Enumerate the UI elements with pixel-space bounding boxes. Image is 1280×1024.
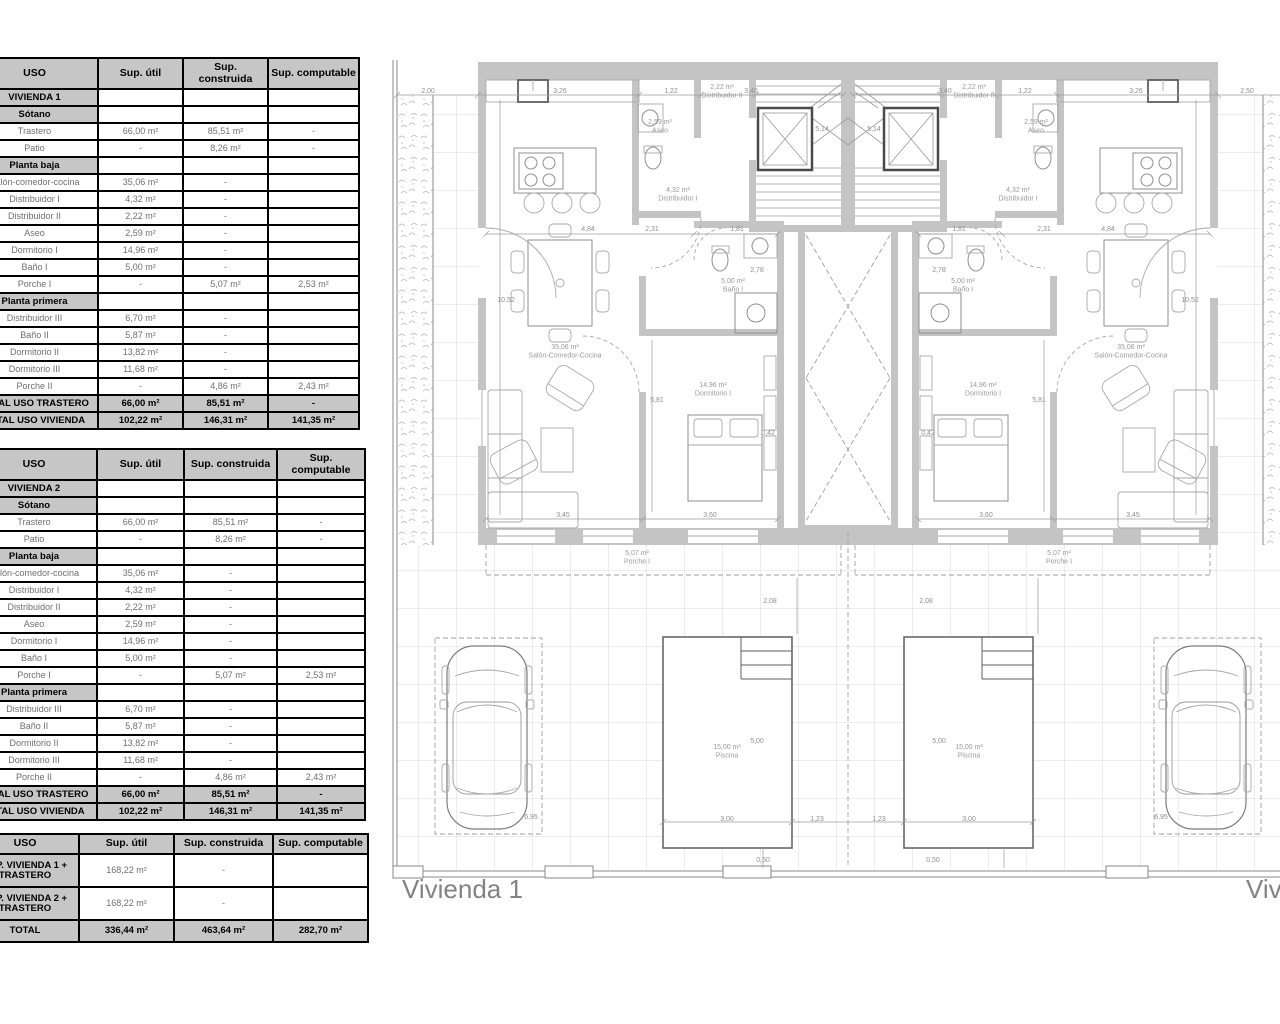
column-header-uso: USO [0, 834, 79, 854]
row-value [97, 684, 184, 701]
table-row: Distribuidor I4,32 m²- [0, 191, 359, 208]
table-row: VIVIENDA 2 [0, 480, 365, 497]
plan-label: 2,78 [932, 267, 946, 274]
plan-label: 2,50 [1240, 88, 1254, 95]
row-value: 102,22 m² [97, 803, 184, 820]
row-label: Patio [0, 531, 97, 548]
row-value: 141,35 m² [277, 803, 365, 820]
row-value [273, 854, 368, 887]
row-label: Distribuidor I [0, 191, 98, 208]
column-header-construida: Sup. construida [184, 449, 277, 480]
row-value: 66,00 m² [97, 786, 184, 803]
row-value: 5,00 m² [97, 650, 184, 667]
plan-label: 3,26 [553, 88, 567, 95]
plan-label: 1,81 [952, 226, 966, 233]
row-label: VIVIENDA 1 [0, 89, 98, 106]
plan-label: 10,52 [1181, 297, 1199, 304]
column-header-util: Sup. útil [97, 449, 184, 480]
surface-table-totals: USO Sup. útil Sup. construida Sup. compu… [0, 833, 369, 943]
row-label: VIVIENDA 2 [0, 480, 97, 497]
plan-label: 2,00 [421, 88, 435, 95]
table-row: Porche I-5,07 m²2,53 m² [0, 276, 359, 293]
row-value: 2,43 m² [268, 378, 359, 395]
row-value: 336,44 m² [79, 920, 174, 942]
row-value: 8,26 m² [183, 140, 268, 157]
row-value [184, 497, 277, 514]
plan-label: 3,00 [962, 816, 976, 823]
row-value [268, 310, 359, 327]
row-label: Distribuidor III [0, 310, 98, 327]
row-value: - [174, 887, 273, 920]
row-label: Baño I [0, 259, 98, 276]
table-row: Planta baja [0, 548, 365, 565]
row-label: Porche I [0, 276, 98, 293]
row-value [98, 106, 183, 123]
row-value [277, 650, 365, 667]
table-row: Trastero66,00 m²85,51 m²- [0, 123, 359, 140]
row-value [268, 293, 359, 310]
row-value: 5,07 m² [184, 667, 277, 684]
table-row: Dormitorio III11,68 m²- [0, 752, 365, 769]
row-value: 66,00 m² [98, 395, 183, 412]
row-label: Sótano [0, 106, 98, 123]
plan-label: 14,96 m²Dormitorio I [695, 382, 731, 398]
plan-label: 3,40 [744, 88, 758, 95]
plan-label: 1,23 [810, 816, 824, 823]
row-value [184, 548, 277, 565]
row-value: 13,82 m² [98, 344, 183, 361]
row-label: Planta baja [0, 548, 97, 565]
row-value: 35,06 m² [98, 174, 183, 191]
table-row: Trastero66,00 m²85,51 m²- [0, 514, 365, 531]
row-value [97, 548, 184, 565]
row-value: - [277, 514, 365, 531]
row-value [277, 480, 365, 497]
row-label: TOTAL USO TRASTERO [0, 395, 98, 412]
table-row: VIVIENDA 1 [0, 89, 359, 106]
row-value: - [183, 259, 268, 276]
column-header-computable: Sup. computable [268, 58, 359, 89]
row-value: - [184, 701, 277, 718]
row-value: 141,35 m² [268, 412, 359, 429]
table-row: TOTAL USO VIVIENDA102,22 m²146,31 m²141,… [0, 803, 365, 820]
table-row: Planta primera [0, 684, 365, 701]
table-row: TOTAL USO TRASTERO66,00 m²85,51 m²- [0, 395, 359, 412]
row-value: 4,32 m² [97, 582, 184, 599]
row-value: 4,86 m² [183, 378, 268, 395]
page: { "tables": { "headers": ["USO", "Sup. ú… [0, 0, 1280, 1024]
row-label: Distribuidor I [0, 582, 97, 599]
plan-label: 5,14 [815, 126, 829, 133]
row-value [183, 89, 268, 106]
row-label: Dormitorio II [0, 735, 97, 752]
row-value: - [98, 276, 183, 293]
row-value: - [268, 140, 359, 157]
table-row: Salón-comedor-cocina35,06 m²- [0, 174, 359, 191]
row-value: - [277, 531, 365, 548]
row-value [277, 599, 365, 616]
row-value: - [268, 123, 359, 140]
row-label: TOTAL [0, 920, 79, 942]
table-row: Distribuidor I4,32 m²- [0, 582, 365, 599]
plan-label: 15,00 m²Piscina [713, 744, 741, 760]
row-value [183, 157, 268, 174]
row-value: - [184, 718, 277, 735]
row-value: - [184, 599, 277, 616]
plan-label: 2,08 [763, 598, 777, 605]
table-row: SUP. VIVIENDA 2 + TRASTERO168,22 m²- [0, 887, 368, 920]
row-label: SUP. VIVIENDA 2 + TRASTERO [0, 887, 79, 920]
table-row: Patio-8,26 m²- [0, 140, 359, 157]
row-label: Dormitorio III [0, 361, 98, 378]
row-value: 6,70 m² [97, 701, 184, 718]
row-value: 5,00 m² [98, 259, 183, 276]
row-value: 66,00 m² [98, 123, 183, 140]
row-value: 2,53 m² [277, 667, 365, 684]
row-label: Porche II [0, 769, 97, 786]
plan-label: 10,52 [497, 297, 515, 304]
row-value: - [184, 582, 277, 599]
row-value: 6,70 m² [98, 310, 183, 327]
row-value: 85,51 m² [183, 395, 268, 412]
row-value: - [183, 242, 268, 259]
row-value [268, 106, 359, 123]
table-row: Planta baja [0, 157, 359, 174]
row-label: TOTAL USO TRASTERO [0, 786, 97, 803]
table-row: Distribuidor III6,70 m²- [0, 310, 359, 327]
row-label: Salón-comedor-cocina [0, 565, 97, 582]
row-value [277, 718, 365, 735]
row-value: - [98, 140, 183, 157]
plan-label: 4,84 [581, 226, 595, 233]
table-row: Sótano [0, 106, 359, 123]
row-value [268, 361, 359, 378]
row-value: 8,26 m² [184, 531, 277, 548]
plan-label: 3,45 [1126, 512, 1140, 519]
column-header-computable: Sup. computable [273, 834, 368, 854]
table-row: Dormitorio I14,96 m²- [0, 242, 359, 259]
row-value [268, 242, 359, 259]
row-value [277, 633, 365, 650]
row-value [277, 616, 365, 633]
table-row: Planta primera [0, 293, 359, 310]
row-value: 5,87 m² [98, 327, 183, 344]
row-value: 13,82 m² [97, 735, 184, 752]
row-value [268, 344, 359, 361]
row-value [268, 157, 359, 174]
row-value [98, 89, 183, 106]
row-value: - [184, 650, 277, 667]
row-value: 2,22 m² [98, 208, 183, 225]
surface-table-vivienda2: USO Sup. útil Sup. construida Sup. compu… [0, 448, 366, 821]
row-value [183, 293, 268, 310]
table-row: Distribuidor III6,70 m²- [0, 701, 365, 718]
plan-label: 1,22 [1018, 88, 1032, 95]
row-value: - [97, 667, 184, 684]
plan-label: 3,40 [938, 88, 952, 95]
row-value [268, 191, 359, 208]
table-row: Porche II-4,86 m²2,43 m² [0, 378, 359, 395]
column-header-computable: Sup. computable [277, 449, 365, 480]
plan-label: 3,60 [703, 512, 717, 519]
row-label: Porche II [0, 378, 98, 395]
plan-label: 5,81 [1032, 397, 1046, 404]
plan-label: 3,26 [1129, 88, 1143, 95]
table-row: Porche I-5,07 m²2,53 m² [0, 667, 365, 684]
row-value: 2,59 m² [98, 225, 183, 242]
row-label: Baño I [0, 650, 97, 667]
plan-label: 3,60 [979, 512, 993, 519]
table-row: Salón-comedor-cocina35,06 m²- [0, 565, 365, 582]
column-header-util: Sup. útil [79, 834, 174, 854]
row-value: - [97, 769, 184, 786]
row-value: - [184, 633, 277, 650]
row-value: 85,51 m² [183, 123, 268, 140]
row-value: - [183, 191, 268, 208]
table-row: Porche II-4,86 m²2,43 m² [0, 769, 365, 786]
table-row: TOTAL USO TRASTERO66,00 m²85,51 m²- [0, 786, 365, 803]
plan-label: 1,23 [872, 816, 886, 823]
row-value: - [174, 854, 273, 887]
row-label: Trastero [0, 123, 98, 140]
plan-label: 2,78 [750, 267, 764, 274]
row-label: Dormitorio III [0, 752, 97, 769]
plan-label: 5,00 m²Baño I [951, 278, 975, 294]
plan-label: 15,00 m²Piscina [955, 744, 983, 760]
row-value [98, 293, 183, 310]
plan-label: 5,07 m²Porche I [624, 550, 650, 566]
row-value: - [184, 752, 277, 769]
row-value: 2,43 m² [277, 769, 365, 786]
plan-label: 5,00 [932, 738, 946, 745]
plan-label: 0,42 [921, 430, 935, 437]
table-row: Dormitorio II13,82 m²- [0, 344, 359, 361]
row-value [268, 225, 359, 242]
row-label: Aseo [0, 616, 97, 633]
row-value: 85,51 m² [184, 786, 277, 803]
row-value: 168,22 m² [79, 854, 174, 887]
row-label: Salón-comedor-cocina [0, 174, 98, 191]
table-row: Aseo2,59 m²- [0, 616, 365, 633]
row-label: Baño II [0, 718, 97, 735]
row-value: 463,64 m² [174, 920, 273, 942]
row-value [97, 497, 184, 514]
row-label: Dormitorio I [0, 242, 98, 259]
row-value: 4,86 m² [184, 769, 277, 786]
plan-label: 3,45 [556, 512, 570, 519]
row-value [277, 735, 365, 752]
row-value: - [183, 344, 268, 361]
table-row: Sótano [0, 497, 365, 514]
row-value [277, 565, 365, 582]
row-value [97, 480, 184, 497]
row-value: - [97, 531, 184, 548]
row-value [277, 582, 365, 599]
table-row: Dormitorio II13,82 m²- [0, 735, 365, 752]
plan-label: 2,31 [645, 226, 659, 233]
plan-label: 1,22 [664, 88, 678, 95]
column-header-construida: Sup. construida [183, 58, 268, 89]
plan-label: 4,84 [1101, 226, 1115, 233]
row-label: Trastero [0, 514, 97, 531]
row-label: SUP. VIVIENDA 1 + TRASTERO [0, 854, 79, 887]
row-label: Aseo [0, 225, 98, 242]
plan-label: 2,08 [919, 598, 933, 605]
row-value [277, 752, 365, 769]
row-value [268, 174, 359, 191]
table-header-row: USO Sup. útil Sup. construida Sup. compu… [0, 449, 365, 480]
row-value: - [183, 327, 268, 344]
table-row: Aseo2,59 m²- [0, 225, 359, 242]
row-value: - [183, 174, 268, 191]
table-row: Baño II5,87 m²- [0, 718, 365, 735]
table-row: SUP. VIVIENDA 1 + TRASTERO168,22 m²- [0, 854, 368, 887]
table-row: Dormitorio I14,96 m²- [0, 633, 365, 650]
row-value: 66,00 m² [97, 514, 184, 531]
table-row: Patio-8,26 m²- [0, 531, 365, 548]
row-value: 11,68 m² [97, 752, 184, 769]
row-value [277, 497, 365, 514]
row-value: - [184, 735, 277, 752]
row-label: TOTAL USO VIVIENDA [0, 412, 98, 429]
row-value [268, 89, 359, 106]
row-value [277, 548, 365, 565]
plan-label: 5,00 [750, 738, 764, 745]
house-1-caption: Vivienda 1 [402, 874, 523, 904]
row-value: 146,31 m² [183, 412, 268, 429]
row-value: - [268, 395, 359, 412]
row-value [277, 701, 365, 718]
plan-label: 5,14 [867, 126, 881, 133]
row-label: Planta primera [0, 293, 98, 310]
row-value: 4,32 m² [98, 191, 183, 208]
table-row: Distribuidor II2,22 m²- [0, 599, 365, 616]
table-row: Distribuidor II2,22 m²- [0, 208, 359, 225]
table-header-row: USO Sup. útil Sup. construida Sup. compu… [0, 834, 368, 854]
plan-label: 3,00 [720, 816, 734, 823]
row-value: - [183, 361, 268, 378]
plan-label: 0,50 [926, 857, 940, 864]
plan-label: 6,95 [1154, 814, 1168, 821]
row-label: Dormitorio II [0, 344, 98, 361]
row-value: 146,31 m² [184, 803, 277, 820]
row-value: - [98, 378, 183, 395]
row-value: 11,68 m² [98, 361, 183, 378]
row-value: 5,87 m² [97, 718, 184, 735]
table-row: TOTAL336,44 m²463,64 m²282,70 m² [0, 920, 368, 942]
column-header-construida: Sup. construida [174, 834, 273, 854]
surface-table-vivienda1: USO Sup. útil Sup. construida Sup. compu… [0, 57, 360, 430]
table-row: Baño I5,00 m²- [0, 650, 365, 667]
row-value [273, 887, 368, 920]
table-row: TOTAL USO VIVIENDA102,22 m²146,31 m²141,… [0, 412, 359, 429]
row-value: - [277, 786, 365, 803]
row-value [277, 684, 365, 701]
row-value: 102,22 m² [98, 412, 183, 429]
row-value: 5,07 m² [183, 276, 268, 293]
table-row: Baño II5,87 m²- [0, 327, 359, 344]
row-value: 35,06 m² [97, 565, 184, 582]
row-value: 14,96 m² [98, 242, 183, 259]
plan-label: 1,81 [730, 226, 744, 233]
row-label: Distribuidor II [0, 208, 98, 225]
plan-label: 14,96 m²Dormitorio I [965, 382, 1001, 398]
column-header-uso: USO [0, 58, 98, 89]
plan-label: 2,31 [1037, 226, 1051, 233]
table-row: Dormitorio III11,68 m²- [0, 361, 359, 378]
column-header-uso: USO [0, 449, 97, 480]
table-header-row: USO Sup. útil Sup. construida Sup. compu… [0, 58, 359, 89]
row-value [98, 157, 183, 174]
row-value [184, 480, 277, 497]
plan-label: 5,00 m²Baño I [721, 278, 745, 294]
row-label: Planta primera [0, 684, 97, 701]
row-label: Sótano [0, 497, 97, 514]
row-label: Dormitorio I [0, 633, 97, 650]
row-label: TOTAL USO VIVIENDA [0, 803, 97, 820]
row-value: - [183, 208, 268, 225]
row-value: - [184, 616, 277, 633]
row-value: - [183, 310, 268, 327]
row-value: 168,22 m² [79, 887, 174, 920]
plan-label: 6,95 [524, 814, 538, 821]
house-2-caption: Vivienda 2 [1246, 874, 1280, 904]
row-value: 2,22 m² [97, 599, 184, 616]
row-value: 282,70 m² [273, 920, 368, 942]
plan-label: 5,07 m²Porche I [1046, 550, 1072, 566]
row-label: Planta baja [0, 157, 98, 174]
row-label: Distribuidor III [0, 701, 97, 718]
row-value [183, 106, 268, 123]
row-value [268, 208, 359, 225]
table-row: Baño I5,00 m²- [0, 259, 359, 276]
row-label: Patio [0, 140, 98, 157]
plan-label: 5,81 [650, 397, 664, 404]
plan-label: 0,50 [756, 857, 770, 864]
row-value [184, 684, 277, 701]
row-value: 14,96 m² [97, 633, 184, 650]
row-label: Porche I [0, 667, 97, 684]
column-header-util: Sup. útil [98, 58, 183, 89]
row-value: 2,59 m² [97, 616, 184, 633]
row-label: Baño II [0, 327, 98, 344]
plan-label: 0,42 [761, 430, 775, 437]
row-value: 85,51 m² [184, 514, 277, 531]
row-value: - [183, 225, 268, 242]
row-value: 2,53 m² [268, 276, 359, 293]
row-label: Distribuidor II [0, 599, 97, 616]
row-value: - [184, 565, 277, 582]
row-value [268, 327, 359, 344]
row-value [268, 259, 359, 276]
